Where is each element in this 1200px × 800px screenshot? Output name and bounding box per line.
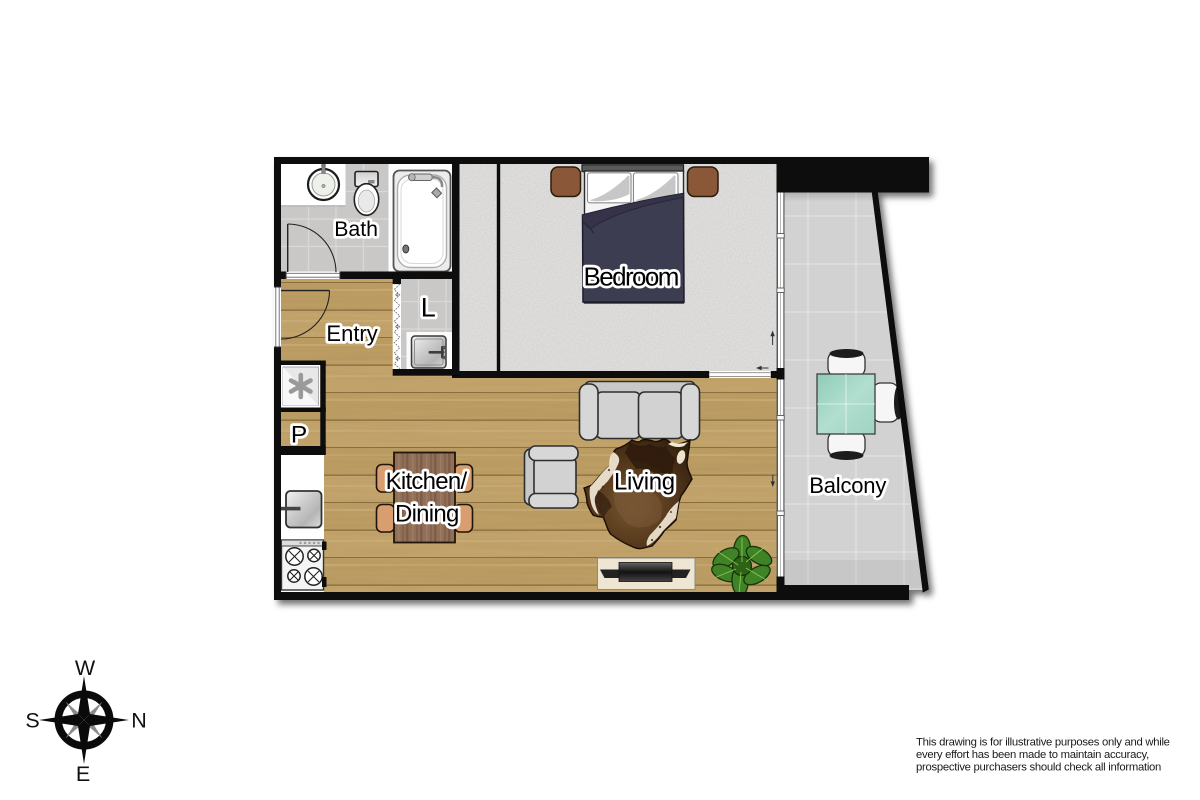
svg-text:Bath: Bath xyxy=(334,217,378,241)
svg-text:S: S xyxy=(25,709,39,733)
svg-text:Bedroom: Bedroom xyxy=(584,261,678,291)
svg-text:Kitchen/: Kitchen/ xyxy=(386,468,468,495)
svg-text:N: N xyxy=(131,709,147,733)
svg-text:Balcony: Balcony xyxy=(809,473,886,498)
svg-text:W: W xyxy=(75,656,96,680)
svg-text:E: E xyxy=(76,762,90,786)
svg-text:Entry: Entry xyxy=(326,321,377,346)
svg-text:every effort has been made to: every effort has been made to maintain a… xyxy=(916,749,1149,761)
svg-text:L: L xyxy=(421,293,436,323)
svg-text:This drawing is for illustrati: This drawing is for illustrative purpose… xyxy=(916,737,1170,749)
svg-text:Living: Living xyxy=(614,468,675,495)
svg-text:Dining: Dining xyxy=(395,501,459,528)
svg-text:P: P xyxy=(291,422,307,449)
svg-text:prospective purchasers should: prospective purchasers should check all … xyxy=(916,762,1161,774)
